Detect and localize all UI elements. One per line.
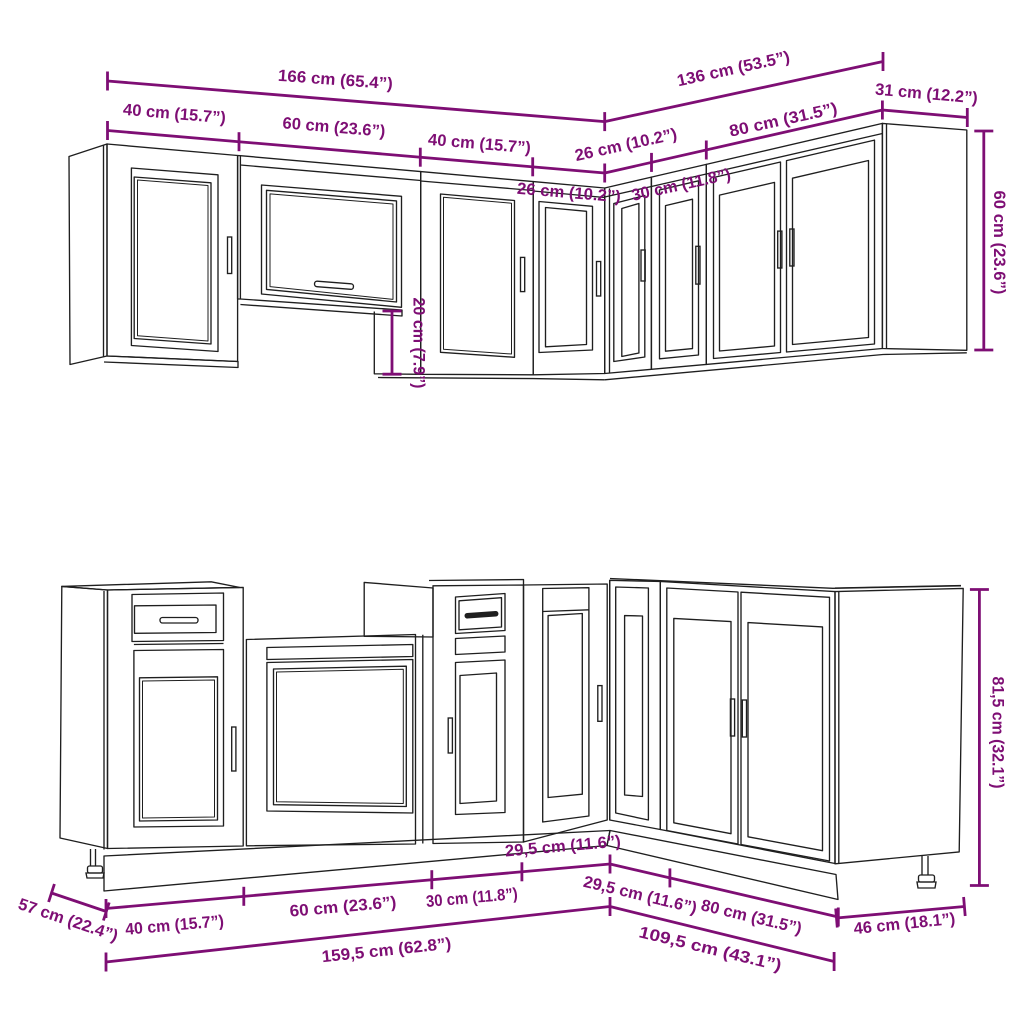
svg-text:60 cm (23.6”): 60 cm (23.6”) xyxy=(990,191,1008,295)
svg-text:20 cm (7.9”): 20 cm (7.9”) xyxy=(410,298,428,389)
svg-text:81,5 cm (32.1”): 81,5 cm (32.1”) xyxy=(989,677,1007,789)
